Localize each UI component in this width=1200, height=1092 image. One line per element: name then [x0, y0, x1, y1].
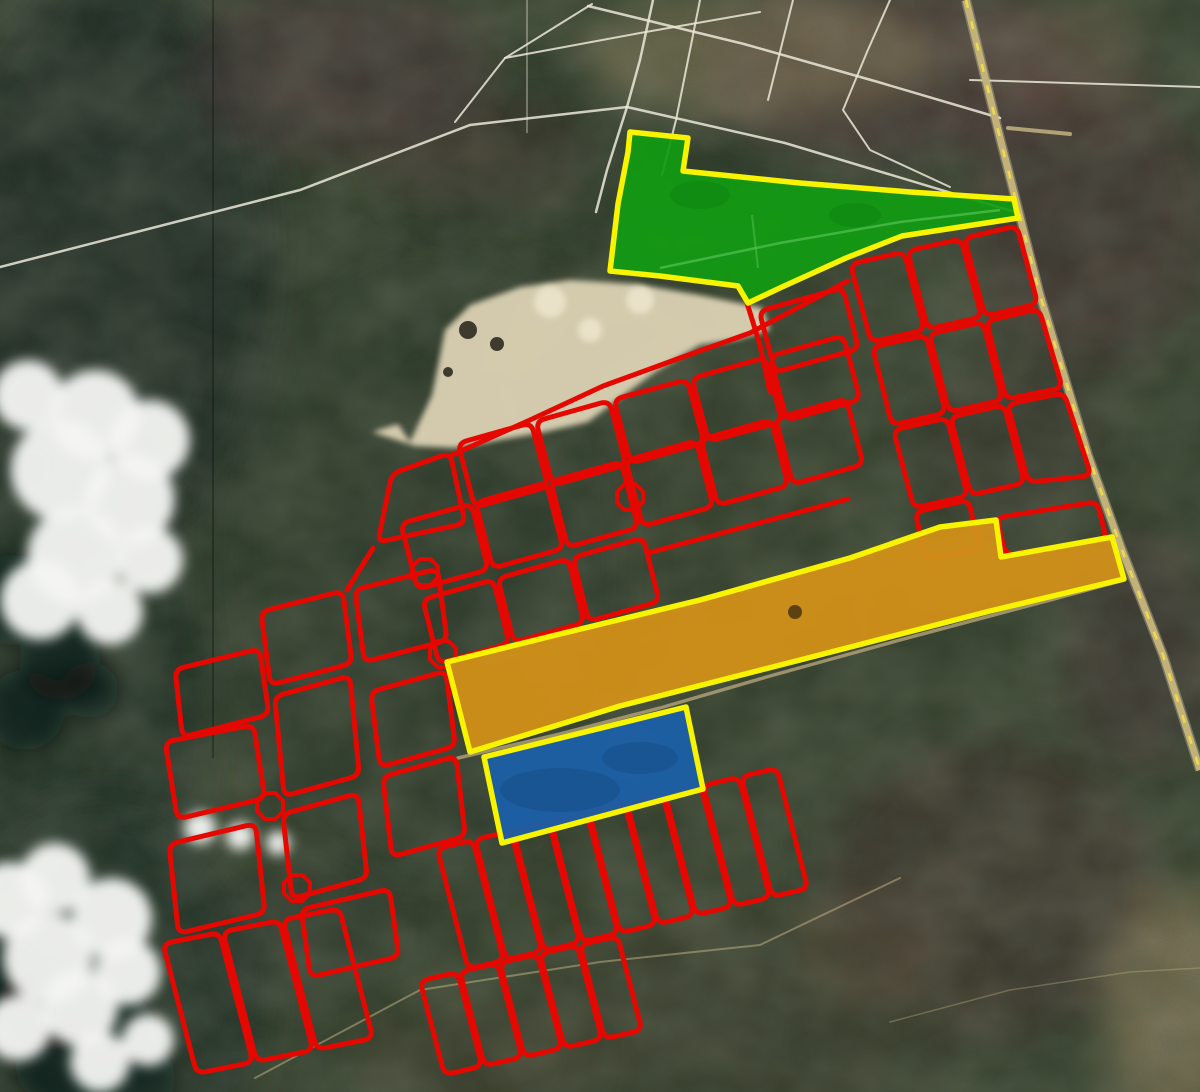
blue-mottle — [500, 768, 620, 812]
sand-dark-spot — [490, 337, 504, 351]
sand-dark-spot — [443, 367, 453, 377]
green-mottle — [670, 181, 730, 209]
satellite-map[interactable] — [0, 0, 1200, 1092]
sand-dark-spot — [459, 321, 477, 339]
sand-light-spot — [534, 286, 566, 318]
map-viewport[interactable] — [0, 0, 1200, 1092]
green-mottle — [829, 203, 881, 227]
sand-light-spot — [626, 286, 654, 314]
sand-light-spot — [578, 318, 602, 342]
blue-mottle — [602, 742, 678, 774]
orange-strip-tree-spot — [788, 605, 802, 619]
